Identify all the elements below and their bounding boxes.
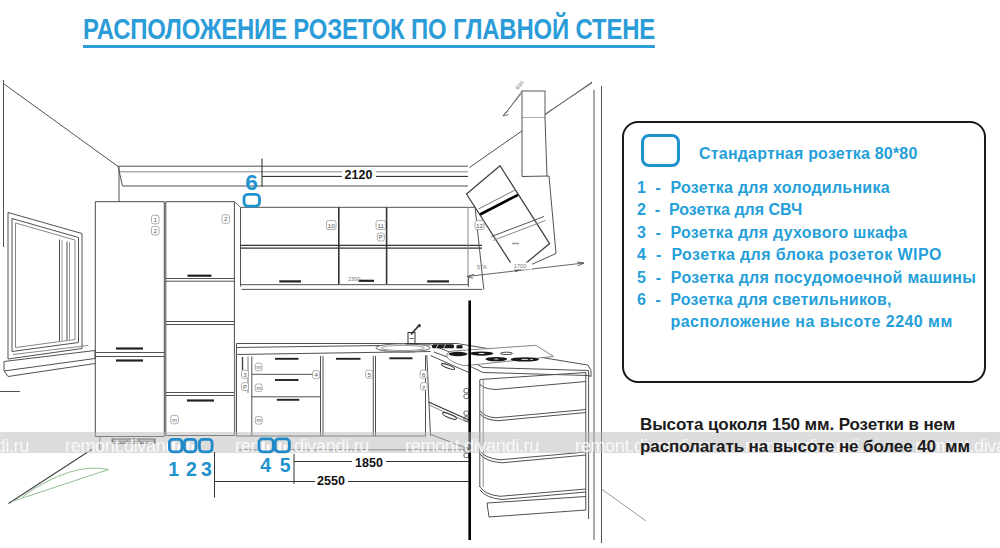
svg-text:m: m [256, 385, 261, 391]
svg-text:1: 1 [168, 458, 179, 480]
svg-text:6: 6 [422, 371, 426, 378]
svg-text:2550: 2550 [317, 474, 345, 488]
svg-text:12: 12 [476, 222, 483, 229]
svg-text:2: 2 [186, 458, 197, 480]
svg-text:2120: 2120 [345, 168, 373, 182]
svg-text:m: m [172, 417, 177, 423]
svg-text:5: 5 [367, 371, 371, 378]
svg-text:m: m [256, 417, 261, 423]
svg-text:P: P [379, 233, 383, 240]
svg-text:m: m [256, 364, 261, 370]
svg-text:P: P [243, 383, 247, 390]
svg-text:600: 600 [514, 80, 525, 91]
svg-text:1700: 1700 [514, 263, 526, 269]
svg-text:57A: 57A [477, 264, 487, 270]
svg-text:4: 4 [314, 371, 318, 378]
svg-text:2300: 2300 [348, 276, 360, 282]
svg-text:3: 3 [201, 458, 212, 480]
svg-text:1: 1 [154, 216, 158, 223]
svg-text:5: 5 [280, 454, 291, 476]
svg-text:11: 11 [378, 222, 385, 229]
svg-text:2: 2 [224, 215, 228, 222]
svg-text:z: z [422, 383, 425, 390]
svg-text:10: 10 [328, 222, 335, 229]
svg-text:4: 4 [260, 454, 271, 476]
svg-text:2: 2 [154, 227, 158, 234]
svg-text:1850: 1850 [355, 456, 383, 470]
svg-text:6: 6 [245, 170, 258, 195]
svg-text:3: 3 [243, 371, 247, 378]
